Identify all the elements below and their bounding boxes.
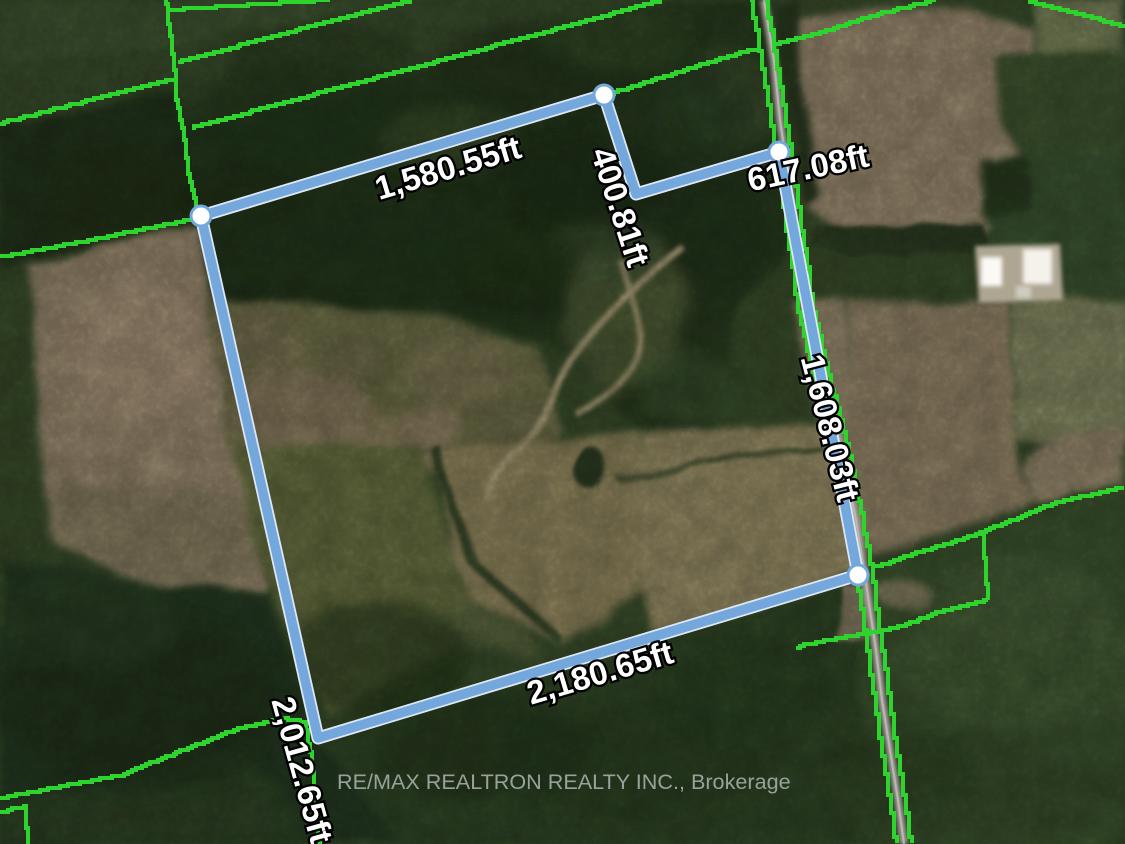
svg-text:RE/MAX REALTRON REALTY INC., B: RE/MAX REALTRON REALTY INC., Brokerage — [337, 769, 791, 794]
